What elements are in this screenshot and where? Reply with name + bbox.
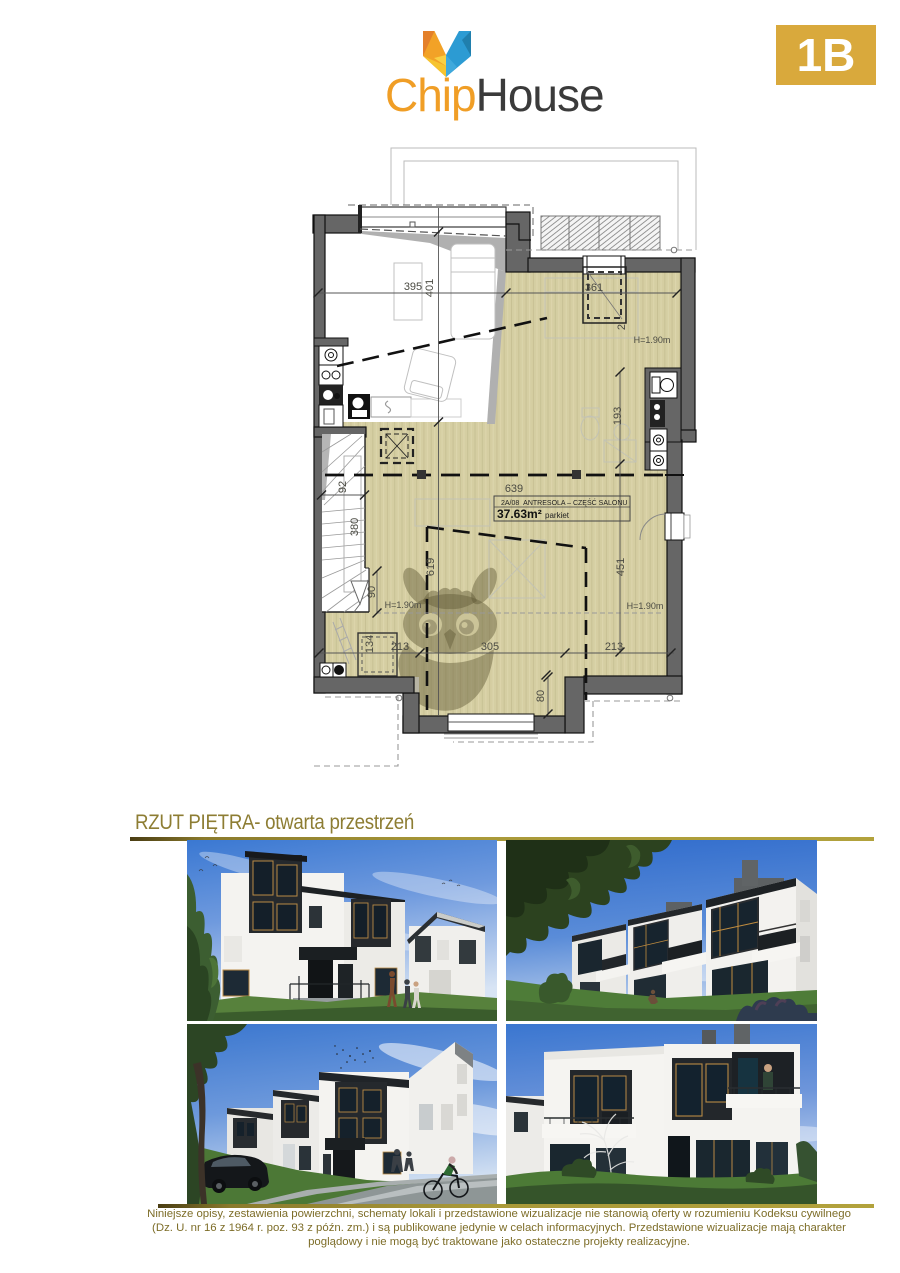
svg-text:401: 401 bbox=[424, 279, 436, 297]
svg-text:H=1.90m: H=1.90m bbox=[634, 335, 671, 345]
svg-text:395: 395 bbox=[404, 281, 422, 293]
svg-text:619: 619 bbox=[425, 558, 437, 576]
svg-text:2: 2 bbox=[616, 324, 628, 330]
svg-text:H=1.90m: H=1.90m bbox=[627, 601, 664, 611]
svg-text:92: 92 bbox=[337, 481, 349, 493]
svg-text:193: 193 bbox=[612, 407, 624, 425]
svg-text:305: 305 bbox=[481, 641, 499, 653]
svg-text:80: 80 bbox=[535, 690, 547, 702]
svg-text:213: 213 bbox=[391, 641, 409, 653]
svg-text:parkiet: parkiet bbox=[545, 511, 570, 520]
svg-text:639: 639 bbox=[505, 483, 523, 495]
svg-text:H=1.90m: H=1.90m bbox=[385, 600, 422, 610]
svg-text:451: 451 bbox=[615, 558, 627, 576]
svg-text:37.63m²: 37.63m² bbox=[497, 507, 542, 521]
svg-text:90: 90 bbox=[366, 586, 378, 598]
svg-text:361: 361 bbox=[585, 282, 603, 294]
svg-text:380: 380 bbox=[349, 518, 361, 536]
svg-text:2A/08 ANTRESOLA – CZĘŚĆ SALON: 2A/08 ANTRESOLA – CZĘŚĆ SALONU bbox=[501, 498, 627, 507]
svg-text:213: 213 bbox=[605, 641, 623, 653]
svg-text:134: 134 bbox=[364, 635, 376, 653]
